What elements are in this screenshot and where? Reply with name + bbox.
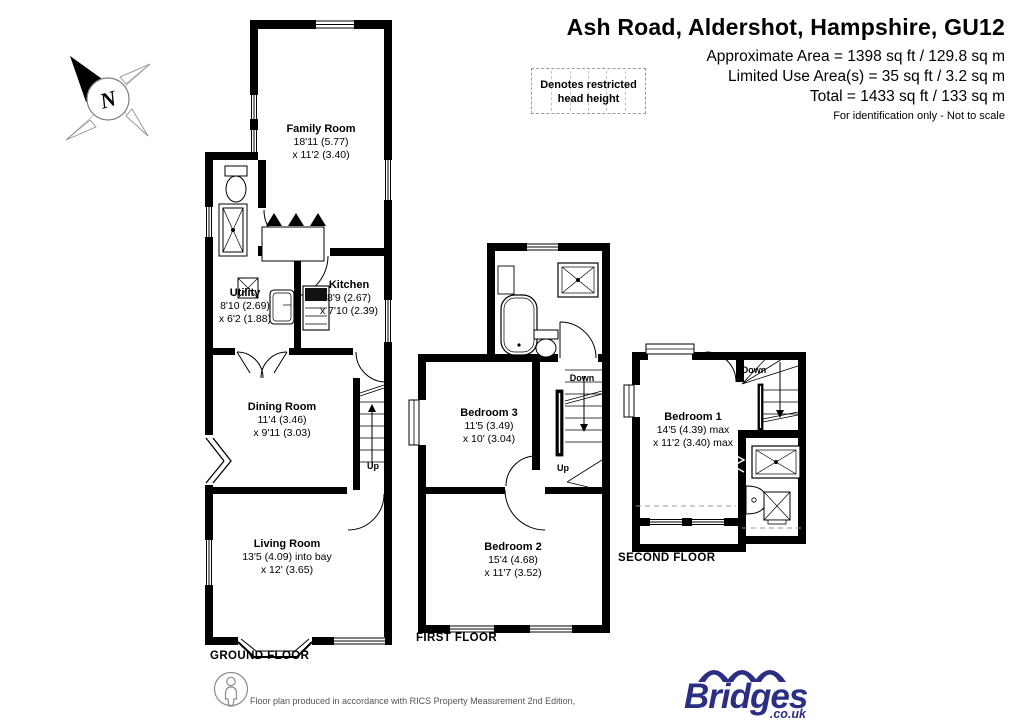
ground-stairs xyxy=(360,385,384,466)
person-icon xyxy=(215,673,248,707)
bath-shower-icon xyxy=(558,263,598,297)
second-floor-label: SECOND FLOOR xyxy=(618,552,715,564)
restricted-head-height-legend: Denotes restricted head height xyxy=(531,68,646,114)
bridges-logo: Bridges .co.uk xyxy=(684,670,808,721)
legend-line2: head height xyxy=(532,92,645,106)
bath-cupboard-icon xyxy=(498,266,514,294)
disclaimer: Floor plan produced in accordance with R… xyxy=(250,673,660,724)
wc-toilet-icon xyxy=(225,166,247,202)
room-label-family-room: Family Room 18'11 (5.77) x 11'2 (3.40) xyxy=(251,123,391,162)
ensuite-basin-icon xyxy=(746,486,766,514)
disclaimer-line1: Floor plan produced in accordance with R… xyxy=(250,696,660,708)
counter-hob-icon xyxy=(262,213,326,261)
page-title: Ash Road, Aldershot, Hampshire, GU12 xyxy=(567,14,1005,41)
bath-toilet-icon xyxy=(534,330,558,357)
room-label-bedroom2: Bedroom 2 15'4 (4.68) x 11'7 (3.52) xyxy=(443,541,583,580)
ensuite-shower-icon xyxy=(752,446,800,478)
bathtub-icon xyxy=(501,295,537,355)
first-stair-down-label: Down xyxy=(564,373,600,383)
room-label-utility: Utility 8'10 (2.69) x 6'2 (1.88) xyxy=(204,287,286,326)
legend-line1: Denotes restricted xyxy=(532,78,645,92)
room-label-bedroom3: Bedroom 3 11'5 (3.49) x 10' (3.04) xyxy=(429,407,549,446)
bridges-logo-suffix: .co.uk xyxy=(770,707,807,721)
room-label-bedroom1: Bedroom 1 14'5 (4.39) max x 11'2 (3.40) … xyxy=(632,411,754,450)
room-label-living-room: Living Room 13'5 (4.09) into bay x 12' (… xyxy=(212,538,362,577)
ensuite-toilet-icon xyxy=(764,492,790,524)
compass-icon: N xyxy=(66,56,150,140)
room-label-dining-room: Dining Room 11'4 (3.46) x 9'11 (3.03) xyxy=(212,401,352,440)
first-stair-up-label: Up xyxy=(548,463,578,473)
first-floor-label: FIRST FLOOR xyxy=(416,632,497,644)
approximate-area: Approximate Area = 1398 sq ft / 129.8 sq… xyxy=(567,47,1005,67)
floorplan-page: N Bridges .co.uk Ash Road, Aldershot, Ha… xyxy=(0,0,1024,724)
room-label-kitchen: Kitchen 8'9 (2.67) x 7'10 (2.39) xyxy=(307,279,391,318)
wc-shower-icon xyxy=(219,204,247,256)
second-stair-down-label: Down xyxy=(736,365,772,375)
ground-stair-up-label: Up xyxy=(358,461,388,471)
ground-floor-label: GROUND FLOOR xyxy=(210,650,309,662)
